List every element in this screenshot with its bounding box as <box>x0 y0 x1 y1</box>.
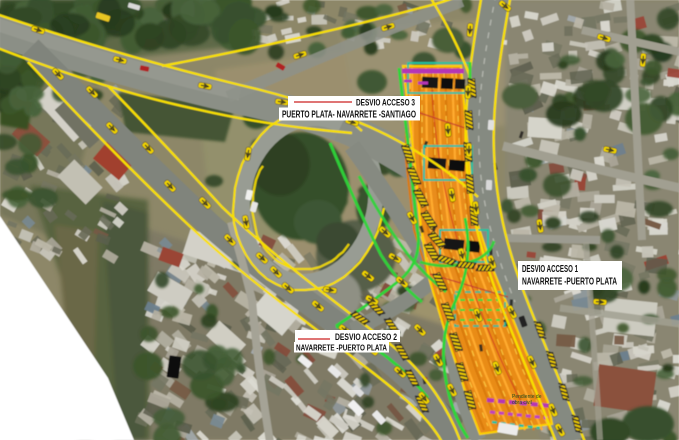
svg-text:NAVARRETE -PUERTO PLATA: NAVARRETE -PUERTO PLATA <box>296 343 387 353</box>
svg-text:DESVIO ACCESO 1: DESVIO ACCESO 1 <box>522 264 578 275</box>
svg-text:DESVIO ACCESO 2: DESVIO ACCESO 2 <box>335 332 397 342</box>
svg-text:DESVIO ACCESO 3: DESVIO ACCESO 3 <box>356 98 415 109</box>
svg-text:PUERTO PLATA- NAVARRETE -SANTI: PUERTO PLATA- NAVARRETE -SANTIAGO <box>282 109 416 121</box>
svg-text:NAVARRETE -PUERTO PLATA: NAVARRETE -PUERTO PLATA <box>522 277 617 288</box>
svg-text:obra civil: obra civil <box>512 400 532 406</box>
